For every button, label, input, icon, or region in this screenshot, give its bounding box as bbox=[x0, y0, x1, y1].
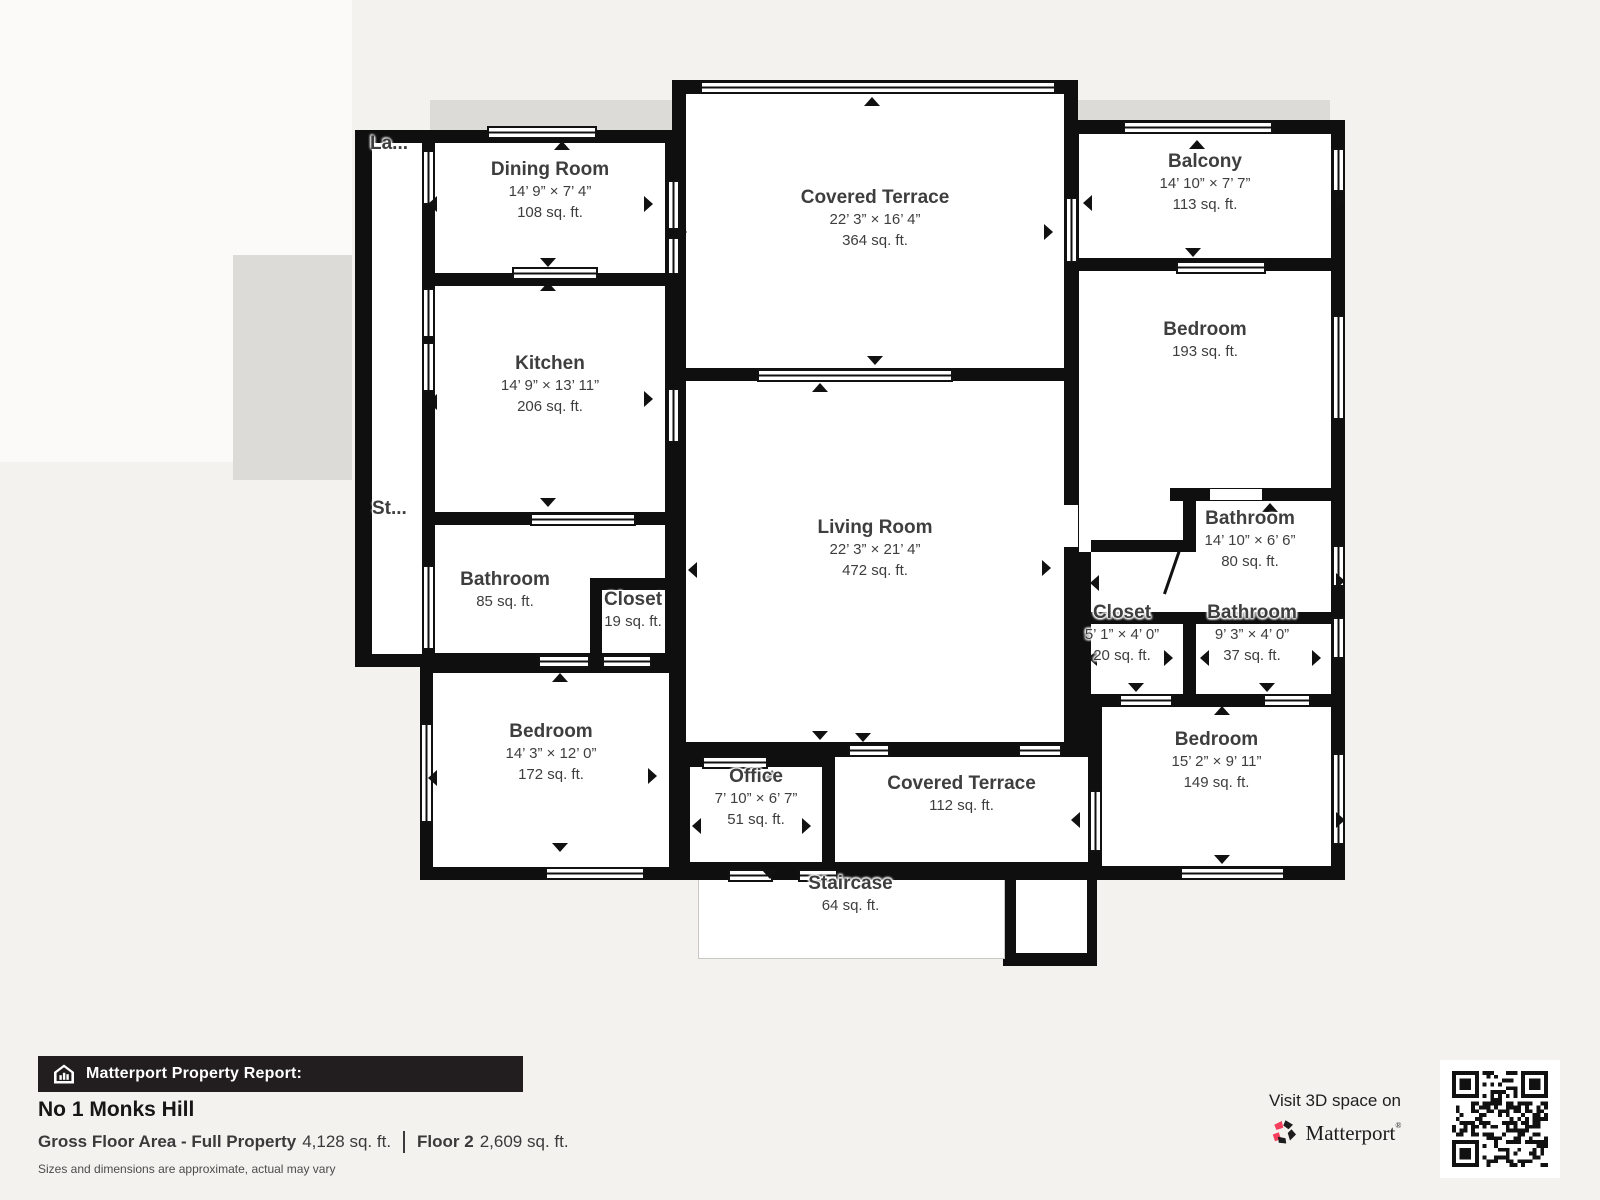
window-marker bbox=[1332, 148, 1345, 192]
floor-label: Floor 2 bbox=[417, 1132, 474, 1152]
window-marker bbox=[422, 288, 435, 338]
window-marker bbox=[1180, 867, 1285, 880]
room-label-covered-terrace-112: Covered Terrace 112 sq. ft. bbox=[835, 772, 1088, 816]
door-arrow-icon bbox=[540, 282, 556, 291]
door-arrow-icon bbox=[864, 97, 880, 106]
window-marker bbox=[1089, 790, 1102, 852]
room-label-bathroom-37: Bathroom 9’ 3” × 4’ 0” 37 sq. ft. bbox=[1172, 601, 1332, 666]
door-arrow-icon bbox=[812, 383, 828, 392]
door-arrow-icon bbox=[554, 141, 570, 150]
room-label-kitchen: Kitchen 14’ 9” × 13’ 11” 206 sq. ft. bbox=[435, 352, 665, 417]
divider bbox=[403, 1131, 405, 1153]
window-marker bbox=[1332, 617, 1345, 659]
door-arrow-icon bbox=[540, 258, 556, 267]
floor-plan-page: La... St... Dining Room 14’ 9” × 7’ 4” 1… bbox=[0, 0, 1600, 1200]
window-marker bbox=[667, 180, 680, 230]
room-label-covered-terrace-364: Covered Terrace 22’ 3” × 16’ 4” 364 sq. … bbox=[686, 186, 1064, 251]
window-marker bbox=[1176, 261, 1266, 274]
window-marker bbox=[545, 867, 645, 880]
window-marker bbox=[602, 655, 652, 668]
door-arrow-icon bbox=[1185, 248, 1201, 257]
visit-3d-block: Visit 3D space on Matterport® bbox=[1235, 1090, 1435, 1148]
gross-area-label: Gross Floor Area - Full Property bbox=[38, 1132, 296, 1152]
wall-segment bbox=[822, 742, 835, 862]
door-opening bbox=[1210, 489, 1262, 500]
room-floor bbox=[1016, 880, 1087, 953]
matterport-logo-icon bbox=[1269, 1118, 1299, 1148]
room-label-staircase: Staircase 64 sq. ft. bbox=[698, 872, 1003, 916]
window-marker bbox=[1119, 694, 1173, 707]
room-label-balcony: Balcony 14’ 10” × 7’ 7” 113 sq. ft. bbox=[1079, 150, 1331, 215]
room-label-closet-20: Closet 5’ 1” × 4’ 0” 20 sq. ft. bbox=[1062, 601, 1182, 666]
window-marker bbox=[487, 126, 597, 139]
door-arrow-icon bbox=[1336, 812, 1345, 828]
report-bar-label: Matterport Property Report: bbox=[86, 1065, 302, 1083]
window-marker bbox=[512, 267, 598, 280]
door-arrow-icon bbox=[1336, 573, 1345, 589]
window-marker bbox=[1263, 694, 1311, 707]
door-arrow-icon bbox=[855, 733, 871, 742]
door-arrow-icon bbox=[552, 843, 568, 852]
room-label-bedroom-149: Bedroom 15’ 2” × 9’ 11” 149 sq. ft. bbox=[1102, 728, 1331, 793]
room-label-bathroom-85: Bathroom 85 sq. ft. bbox=[415, 568, 595, 612]
house-chart-icon bbox=[52, 1062, 76, 1086]
qr-code-box bbox=[1440, 1060, 1560, 1178]
window-marker bbox=[667, 237, 680, 275]
window-marker bbox=[757, 369, 953, 382]
room-label-dining-room: Dining Room 14’ 9” × 7’ 4” 108 sq. ft. bbox=[435, 158, 665, 223]
door-opening bbox=[1064, 505, 1078, 547]
gross-area-value: 4,128 sq. ft. bbox=[302, 1132, 391, 1152]
door-arrow-icon bbox=[1189, 140, 1205, 149]
matterport-wordmark: Matterport® bbox=[1306, 1121, 1402, 1146]
floor-area-summary: Gross Floor Area - Full Property 4,128 s… bbox=[38, 1131, 569, 1153]
door-arrow-icon bbox=[1214, 855, 1230, 864]
door-arrow-icon bbox=[1090, 575, 1099, 591]
lower-floor-silhouette-left bbox=[233, 255, 352, 480]
room-label-bathroom-80: Bathroom 14’ 10” × 6’ 6” 80 sq. ft. bbox=[1170, 507, 1330, 572]
window-marker bbox=[848, 744, 890, 757]
door-arrow-icon bbox=[812, 731, 828, 740]
door-arrow-icon bbox=[1259, 683, 1275, 692]
disclaimer-text: Sizes and dimensions are approximate, ac… bbox=[38, 1162, 335, 1176]
window-marker bbox=[667, 388, 680, 443]
room-label-laundry-truncated: La... bbox=[370, 133, 416, 155]
room-label-closet-19: Closet 19 sq. ft. bbox=[593, 588, 673, 632]
qr-code bbox=[1452, 1071, 1548, 1167]
window-marker bbox=[1332, 315, 1345, 420]
report-title-bar: Matterport Property Report: bbox=[38, 1056, 523, 1092]
room-label-stairs-truncated: St... bbox=[372, 498, 416, 520]
room-label-bedroom-193: Bedroom 193 sq. ft. bbox=[1079, 318, 1331, 362]
room-label-living-room: Living Room 22’ 3” × 21’ 4” 472 sq. ft. bbox=[686, 516, 1064, 581]
door-arrow-icon bbox=[552, 673, 568, 682]
window-marker bbox=[1123, 121, 1273, 134]
door-arrow-icon bbox=[1128, 683, 1144, 692]
room-label-bedroom-172: Bedroom 14’ 3” × 12’ 0” 172 sq. ft. bbox=[433, 720, 669, 785]
window-marker bbox=[422, 342, 435, 392]
window-marker bbox=[1332, 753, 1345, 845]
door-arrow-icon bbox=[867, 356, 883, 365]
window-marker bbox=[700, 81, 1056, 94]
window-marker bbox=[530, 513, 636, 526]
property-name: No 1 Monks Hill bbox=[38, 1098, 194, 1122]
room-label-office: Office 7’ 10” × 6’ 7” 51 sq. ft. bbox=[690, 765, 822, 830]
room-floor bbox=[1079, 271, 1331, 488]
door-arrow-icon bbox=[540, 498, 556, 507]
door-arrow-icon bbox=[1214, 706, 1230, 715]
window-marker bbox=[1018, 744, 1062, 757]
window-marker bbox=[1065, 197, 1078, 263]
visit-3d-label: Visit 3D space on bbox=[1235, 1090, 1435, 1112]
window-marker bbox=[538, 655, 590, 668]
brand-row: Matterport® bbox=[1235, 1118, 1435, 1148]
floor-value: 2,609 sq. ft. bbox=[480, 1132, 569, 1152]
door-arrow-icon bbox=[1336, 193, 1345, 209]
